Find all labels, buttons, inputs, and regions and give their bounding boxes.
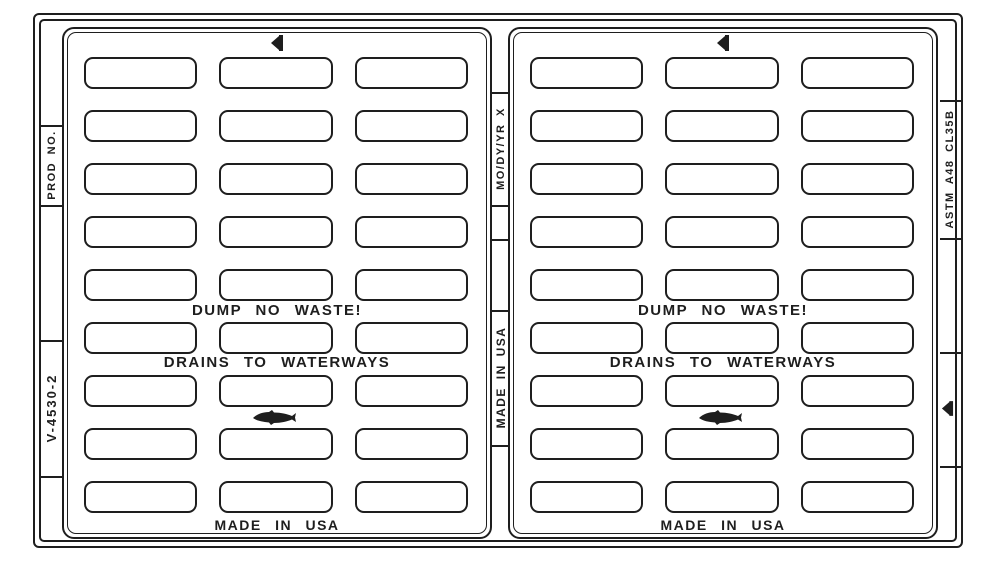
grate-slot (219, 481, 332, 513)
grate-slot (801, 428, 914, 460)
grate-slot (355, 481, 468, 513)
dump-no-waste-text: DUMP NO WASTE! (64, 303, 490, 319)
slot-grid (84, 57, 468, 513)
grate-slot (355, 110, 468, 142)
grate-slot (530, 428, 643, 460)
slot-grid (530, 57, 914, 513)
fish-icon (251, 409, 303, 431)
grate-slot (219, 322, 332, 354)
grate-slot (530, 216, 643, 248)
grate-slot (665, 375, 778, 407)
grate-slot (530, 57, 643, 89)
foundry-marker-icon (270, 34, 284, 57)
grate-slot (801, 216, 914, 248)
grate-slot (84, 269, 197, 301)
grate-slot (219, 57, 332, 89)
grate-slot (665, 428, 778, 460)
grate-slot (219, 375, 332, 407)
rail-tick (492, 205, 508, 207)
rail-tick (940, 352, 961, 354)
grate-slot (801, 481, 914, 513)
made-in-usa-text: MADE IN USA (64, 517, 490, 533)
grate-slot (84, 428, 197, 460)
dump-no-waste-text: DUMP NO WASTE! (510, 303, 936, 319)
grate-panel-left: DUMP NO WASTE! DRAINS TO WATERWAYS MADE … (62, 27, 492, 539)
grate-slot (219, 163, 332, 195)
pattern-number-label: V-4530-2 (44, 341, 60, 475)
grate-slot (801, 110, 914, 142)
grate-slot (355, 322, 468, 354)
grate-slot (84, 163, 197, 195)
grate-slot (801, 163, 914, 195)
rail-tick (492, 445, 508, 447)
grate-slot (84, 216, 197, 248)
grate-slot (801, 269, 914, 301)
rail-tick (41, 476, 62, 478)
grate-slot (355, 163, 468, 195)
grate-pattern-drawing: DUMP NO WASTE! DRAINS TO WATERWAYS MADE … (0, 0, 1000, 567)
grate-slot (219, 428, 332, 460)
grate-slot (355, 269, 468, 301)
grate-slot (801, 375, 914, 407)
grate-slot (219, 216, 332, 248)
grate-slot (355, 216, 468, 248)
grate-slot (530, 322, 643, 354)
grate-slot (84, 110, 197, 142)
rail-tick (940, 466, 961, 468)
grate-slot (84, 375, 197, 407)
drains-to-waterways-text: DRAINS TO WATERWAYS (510, 355, 936, 371)
grate-slot (665, 163, 778, 195)
grate-slot (665, 269, 778, 301)
grate-slot (355, 375, 468, 407)
made-in-usa-text: MADE IN USA (510, 517, 936, 533)
grate-slot (84, 322, 197, 354)
grate-slot (530, 481, 643, 513)
grate-slot (355, 428, 468, 460)
grate-slot (530, 110, 643, 142)
rail-tick (41, 205, 62, 207)
astm-spec-label: ASTM A48 CL35B (942, 101, 958, 237)
grate-slot (665, 110, 778, 142)
grate-slot (665, 481, 778, 513)
fish-icon (697, 409, 749, 431)
grate-slot (530, 269, 643, 301)
prod-no-label: PROD NO. (44, 126, 60, 204)
date-stamp-label: MO/DY/YR X (493, 93, 509, 204)
foundry-marker-icon (941, 399, 954, 423)
grate-slot (665, 216, 778, 248)
grate-slot (801, 57, 914, 89)
drains-to-waterways-text: DRAINS TO WATERWAYS (64, 355, 490, 371)
grate-slot (84, 57, 197, 89)
grate-slot (219, 269, 332, 301)
grate-panel-right: DUMP NO WASTE! DRAINS TO WATERWAYS MADE … (508, 27, 938, 539)
rail-tick (492, 239, 508, 241)
grate-slot (665, 322, 778, 354)
rail-tick (940, 238, 961, 240)
grate-slot (355, 57, 468, 89)
grate-slot (530, 163, 643, 195)
grate-slot (219, 110, 332, 142)
grate-slot (84, 481, 197, 513)
grate-slot (665, 57, 778, 89)
made-in-usa-rail-label: MADE IN USA (493, 311, 509, 444)
grate-slot (801, 322, 914, 354)
grate-slot (530, 375, 643, 407)
foundry-marker-icon (716, 34, 730, 57)
